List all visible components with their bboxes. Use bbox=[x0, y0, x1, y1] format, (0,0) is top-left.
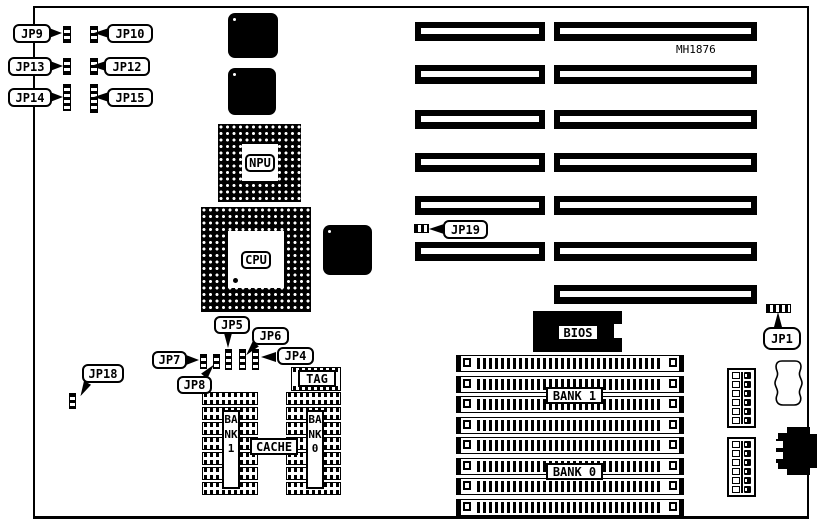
simm-latch-left bbox=[463, 420, 471, 429]
power-pin-row bbox=[732, 408, 751, 415]
jp18-label: JP18 bbox=[82, 364, 124, 383]
jp18-text: JP18 bbox=[89, 367, 118, 381]
simm-endcap-left bbox=[457, 459, 461, 474]
power-pin bbox=[744, 450, 751, 457]
simm-endcap-left bbox=[457, 377, 461, 392]
power-pin-hole bbox=[732, 399, 740, 406]
bios-text: BIOS bbox=[564, 326, 593, 340]
simm-endcap-left bbox=[457, 479, 461, 494]
npu-label: NPU bbox=[245, 154, 275, 172]
slot-opening bbox=[421, 71, 539, 77]
power-pin-row bbox=[732, 372, 751, 379]
simm-pins bbox=[477, 420, 663, 431]
bios-label: BIOS bbox=[557, 324, 599, 341]
jp9-label: JP9 bbox=[13, 24, 51, 43]
power-pin bbox=[744, 408, 751, 415]
board-id-text: MH1876 bbox=[676, 43, 716, 56]
power-pin-hole bbox=[732, 477, 740, 484]
simm-latch-left bbox=[463, 502, 471, 511]
slot-opening bbox=[421, 202, 539, 208]
power-pin bbox=[744, 390, 751, 397]
simm-endcap-right bbox=[679, 356, 683, 371]
slot-opening bbox=[421, 116, 539, 122]
simm-pins bbox=[477, 481, 663, 492]
simm-endcap-left bbox=[457, 438, 461, 453]
pin1-dot bbox=[328, 230, 331, 233]
simm-pins bbox=[477, 440, 663, 451]
jp19-text: JP19 bbox=[451, 223, 480, 237]
jp9-text: JP9 bbox=[21, 27, 43, 41]
isa-slot-short-segment bbox=[415, 22, 545, 41]
slot-opening bbox=[560, 116, 751, 122]
npu-center: NPU bbox=[242, 144, 278, 181]
power-pin bbox=[744, 381, 751, 388]
simm-pins bbox=[477, 358, 663, 369]
bank1-label: BANK 1 bbox=[546, 387, 603, 404]
power-pin-hole bbox=[732, 450, 740, 457]
jp7-pointer bbox=[186, 355, 199, 365]
isa-slot-short-segment bbox=[415, 65, 545, 84]
jp4-pointer bbox=[261, 352, 276, 362]
power-pin-row bbox=[732, 450, 751, 457]
simm-endcap-right bbox=[679, 418, 683, 433]
simm-latch-left bbox=[463, 440, 471, 449]
jp12-text: JP12 bbox=[113, 60, 142, 74]
isa-slot-long-segment bbox=[554, 196, 757, 215]
bank1-text: BANK 1 bbox=[553, 389, 596, 403]
simm-endcap-right bbox=[679, 479, 683, 494]
simm-endcap-left bbox=[457, 397, 461, 412]
simm-latch-left bbox=[463, 379, 471, 388]
cache-chip bbox=[202, 392, 258, 405]
cpu-center: CPU bbox=[228, 231, 284, 288]
power-pin bbox=[744, 417, 751, 424]
isa-slot-short-segment bbox=[415, 196, 545, 215]
power-pin-hole bbox=[732, 381, 740, 388]
simm-endcap-right bbox=[679, 459, 683, 474]
power-pin bbox=[744, 486, 751, 493]
bank0-text: BANK 0 bbox=[553, 465, 596, 479]
slot-opening bbox=[421, 159, 539, 165]
simm-socket bbox=[456, 355, 684, 372]
simm-latch-right bbox=[669, 461, 677, 470]
jp4-text: JP4 bbox=[285, 349, 307, 363]
pin1-dot bbox=[233, 18, 236, 21]
power-pin bbox=[744, 399, 751, 406]
simm-latch-left bbox=[463, 481, 471, 490]
power-pin-hole bbox=[732, 417, 740, 424]
power-pin bbox=[744, 468, 751, 475]
jp7-text: JP7 bbox=[159, 353, 181, 367]
jp14-text: JP14 bbox=[16, 91, 45, 105]
power-pin bbox=[744, 459, 751, 466]
power-pin bbox=[744, 441, 751, 448]
slot-opening bbox=[560, 248, 751, 254]
cache-text: CACHE bbox=[256, 440, 292, 454]
jp15-label: JP15 bbox=[107, 88, 153, 107]
simm-endcap-right bbox=[679, 500, 683, 515]
power-pin-hole bbox=[732, 459, 740, 466]
simm-endcap-right bbox=[679, 397, 683, 412]
jp19-jumper bbox=[414, 224, 429, 233]
pin1-dot bbox=[233, 73, 236, 76]
jp12-label: JP12 bbox=[104, 57, 150, 76]
isa-slot-short-segment bbox=[415, 242, 545, 261]
cache-bank0-label: BANK0 bbox=[306, 410, 324, 489]
simm-endcap-right bbox=[679, 438, 683, 453]
jp13-text: JP13 bbox=[16, 60, 45, 74]
jp13-jumper bbox=[63, 58, 71, 75]
slot-opening bbox=[421, 28, 539, 34]
cache-bank1-label: BANK1 bbox=[222, 410, 240, 489]
simm-latch-right bbox=[669, 502, 677, 511]
slot-opening bbox=[560, 28, 751, 34]
npu-socket: NPU bbox=[218, 124, 301, 202]
simm-latch-right bbox=[669, 399, 677, 408]
simm-socket bbox=[456, 478, 684, 495]
bank0-label: BANK 0 bbox=[546, 463, 603, 480]
simm-latch-right bbox=[669, 481, 677, 490]
isa-slot-long-segment bbox=[554, 153, 757, 172]
slot-opening bbox=[560, 159, 751, 165]
jp8-text: JP8 bbox=[184, 378, 206, 392]
power-pin-hole bbox=[732, 408, 740, 415]
chip-u2 bbox=[228, 68, 276, 115]
jp10-text: JP10 bbox=[116, 27, 145, 41]
jp5-jumper bbox=[225, 349, 232, 370]
power-connector bbox=[727, 437, 756, 497]
jp19-pointer bbox=[429, 224, 444, 234]
simm-latch-left bbox=[463, 399, 471, 408]
power-pin-row bbox=[732, 381, 751, 388]
jp4-label: JP4 bbox=[277, 347, 314, 365]
jp6-label: JP6 bbox=[252, 327, 289, 345]
jp14-jumper bbox=[63, 84, 71, 111]
power-pin-row bbox=[732, 441, 751, 448]
power-pin bbox=[744, 477, 751, 484]
power-pin-hole bbox=[732, 486, 740, 493]
power-pin-row bbox=[732, 459, 751, 466]
simm-latch-right bbox=[669, 420, 677, 429]
slot-opening bbox=[560, 71, 751, 77]
power-pin-hole bbox=[732, 390, 740, 397]
jp13-label: JP13 bbox=[8, 57, 52, 76]
cache-label: CACHE bbox=[250, 438, 298, 455]
chip-u1 bbox=[228, 13, 278, 58]
isa-slot-long-segment bbox=[554, 110, 757, 129]
keyboard-connector bbox=[774, 427, 817, 476]
cpu-label: CPU bbox=[241, 251, 271, 269]
power-pin-row bbox=[732, 390, 751, 397]
jp9-jumper bbox=[63, 26, 71, 43]
jp14-label: JP14 bbox=[8, 88, 52, 107]
power-pin-hole bbox=[732, 468, 740, 475]
simm-socket bbox=[456, 499, 684, 516]
slot-opening bbox=[421, 248, 539, 254]
power-connector bbox=[727, 368, 756, 428]
simm-latch-left bbox=[463, 461, 471, 470]
power-pin-row bbox=[732, 399, 751, 406]
isa-slot-long-segment bbox=[554, 22, 757, 41]
slot-opening bbox=[560, 202, 751, 208]
power-pin-row bbox=[732, 417, 751, 424]
tag-label: TAG bbox=[298, 370, 336, 387]
slot-opening bbox=[560, 291, 751, 297]
isa-slot-long-segment bbox=[554, 65, 757, 84]
isa-slot-long-segment bbox=[554, 285, 757, 304]
jp6-text: JP6 bbox=[260, 329, 282, 343]
motherboard-diagram: MH1876 JP9 JP10 JP13 JP12 JP14 JP15 NPU … bbox=[0, 0, 817, 527]
isa-slot-long-segment bbox=[554, 242, 757, 261]
simm-pins bbox=[477, 502, 663, 513]
power-pin-hole bbox=[732, 372, 740, 379]
simm-socket bbox=[456, 437, 684, 454]
jp15-text: JP15 bbox=[116, 91, 145, 105]
chip-u3 bbox=[323, 225, 372, 275]
isa-slot-short-segment bbox=[415, 153, 545, 172]
jp1-label: JP1 bbox=[763, 327, 801, 350]
simm-latch-left bbox=[463, 358, 471, 367]
power-pin-row bbox=[732, 468, 751, 475]
cpu-socket: CPU bbox=[201, 207, 311, 312]
component-outline bbox=[771, 358, 807, 408]
simm-latch-right bbox=[669, 379, 677, 388]
simm-endcap-left bbox=[457, 356, 461, 371]
simm-endcap-left bbox=[457, 500, 461, 515]
cache-chip bbox=[286, 392, 341, 405]
jp7-label: JP7 bbox=[152, 351, 187, 369]
power-pin-row bbox=[732, 486, 751, 493]
jp5-text: JP5 bbox=[221, 318, 243, 332]
isa-slot-short-segment bbox=[415, 110, 545, 129]
simm-endcap-right bbox=[679, 377, 683, 392]
cpu-pin1-dot bbox=[233, 278, 238, 283]
simm-socket bbox=[456, 417, 684, 434]
simm-latch-right bbox=[669, 358, 677, 367]
jp19-label: JP19 bbox=[443, 220, 488, 239]
jp5-label: JP5 bbox=[214, 316, 250, 334]
tag-text: TAG bbox=[306, 372, 328, 386]
jp1-pointer bbox=[774, 312, 782, 327]
power-pin-hole bbox=[732, 441, 740, 448]
jp10-label: JP10 bbox=[107, 24, 153, 43]
jp8-label: JP8 bbox=[177, 376, 212, 394]
simm-latch-right bbox=[669, 440, 677, 449]
jp5-pointer bbox=[224, 333, 232, 348]
simm-endcap-left bbox=[457, 418, 461, 433]
jp18-jumper bbox=[69, 393, 76, 409]
power-pin-row bbox=[732, 477, 751, 484]
bios-notch bbox=[614, 324, 622, 338]
jp1-text: JP1 bbox=[771, 332, 793, 346]
power-pin bbox=[744, 372, 751, 379]
